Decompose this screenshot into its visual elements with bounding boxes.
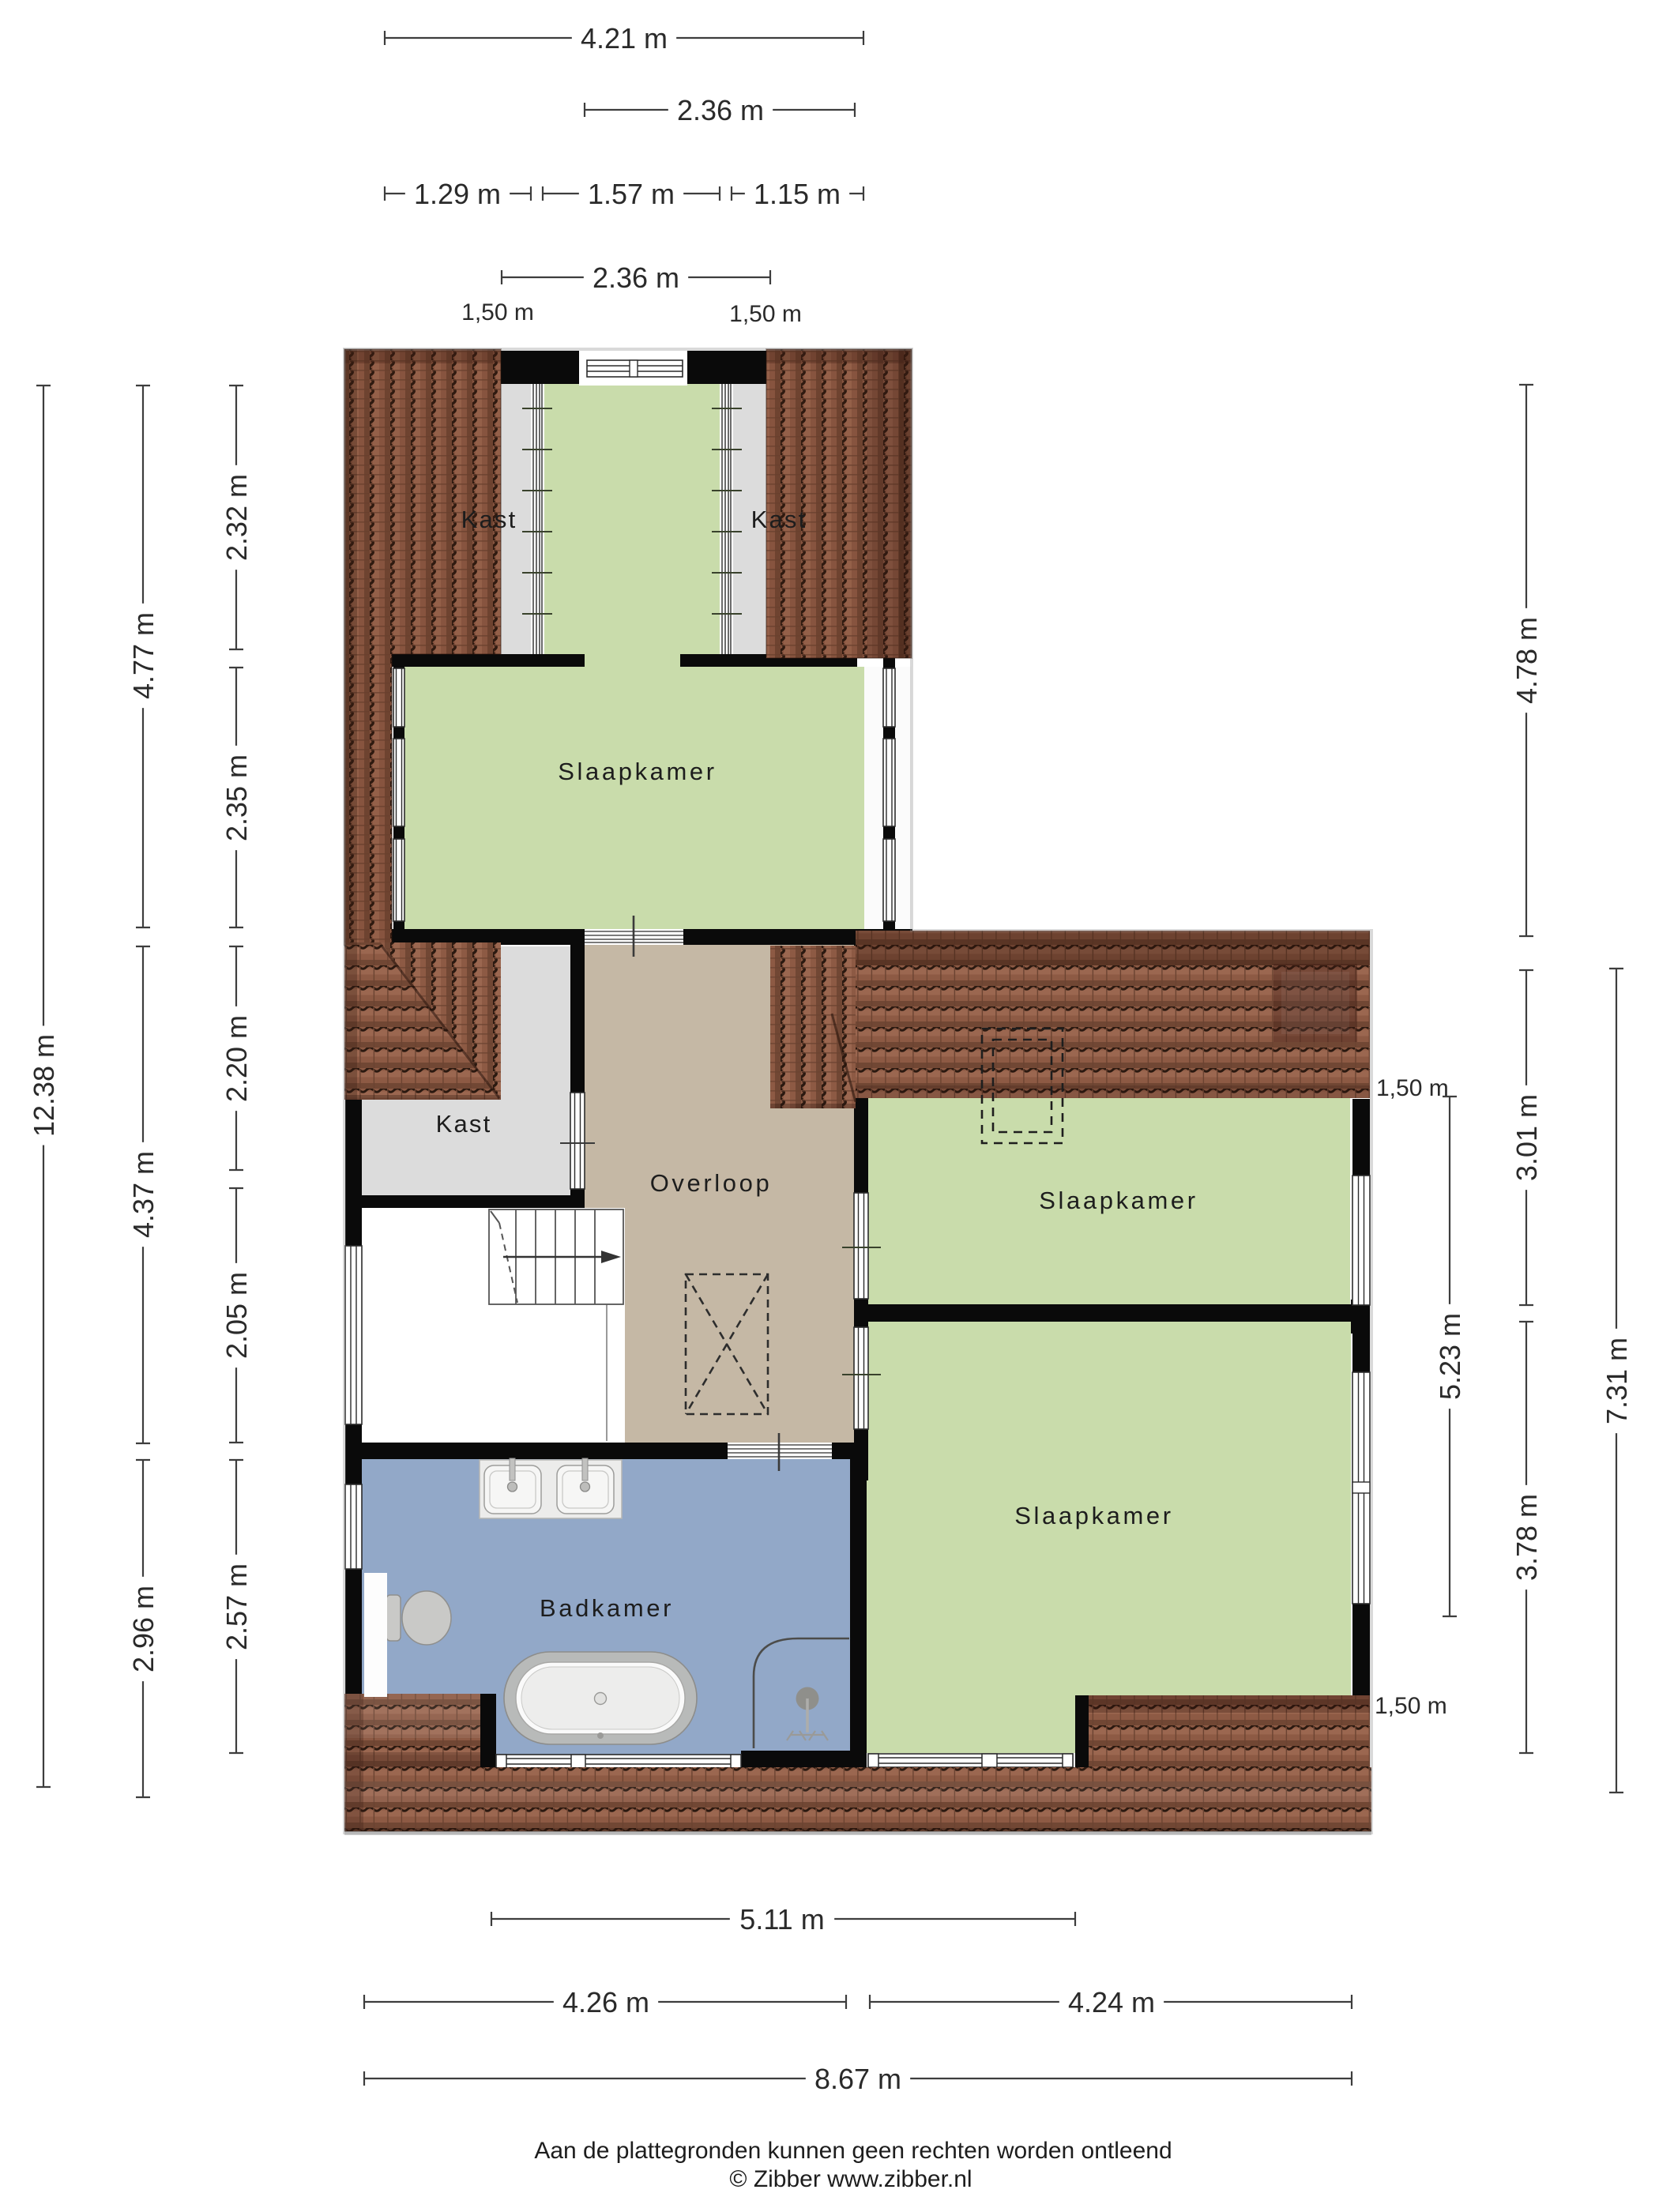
svg-text:5.23 m: 5.23 m — [1434, 1313, 1466, 1400]
svg-text:2.36 m: 2.36 m — [677, 94, 764, 126]
svg-text:2.32 m: 2.32 m — [220, 474, 253, 561]
svg-text:Kast: Kast — [436, 1110, 492, 1138]
svg-text:Aan de plattegronden kunnen ge: Aan de plattegronden kunnen geen rechten… — [534, 2138, 1172, 2164]
svg-text:2.35 m: 2.35 m — [220, 754, 253, 841]
svg-text:4.24 m: 4.24 m — [1068, 1986, 1155, 2018]
svg-text:2.36 m: 2.36 m — [592, 261, 679, 294]
svg-text:4.78 m: 4.78 m — [1510, 617, 1543, 704]
svg-text:2.05 m: 2.05 m — [220, 1272, 253, 1359]
svg-text:1.15 m: 1.15 m — [754, 178, 841, 210]
svg-text:1.29 m: 1.29 m — [414, 178, 501, 210]
svg-text:7.31 m: 7.31 m — [1601, 1337, 1633, 1424]
svg-text:Overloop: Overloop — [650, 1169, 773, 1197]
svg-text:Kast: Kast — [461, 506, 517, 533]
svg-text:5.11 m: 5.11 m — [739, 1903, 824, 1935]
svg-text:4.26 m: 4.26 m — [562, 1986, 649, 2018]
svg-text:© Zibber www.zibber.nl: © Zibber www.zibber.nl — [729, 2166, 972, 2192]
svg-text:8.67 m: 8.67 m — [814, 2063, 901, 2095]
svg-text:2.57 m: 2.57 m — [220, 1563, 253, 1650]
svg-text:Kast: Kast — [751, 506, 807, 533]
svg-text:Slaapkamer: Slaapkamer — [1014, 1502, 1173, 1529]
svg-text:Slaapkamer: Slaapkamer — [1039, 1187, 1198, 1214]
svg-text:4.21 m: 4.21 m — [581, 22, 668, 55]
svg-text:1,50 m: 1,50 m — [461, 299, 534, 325]
svg-text:1,50 m: 1,50 m — [1376, 1075, 1449, 1101]
svg-text:1,50 m: 1,50 m — [1375, 1693, 1447, 1719]
svg-text:2.96 m: 2.96 m — [127, 1586, 160, 1672]
svg-text:1.57 m: 1.57 m — [588, 178, 675, 210]
svg-text:1,50 m: 1,50 m — [729, 301, 802, 327]
svg-text:3.78 m: 3.78 m — [1510, 1494, 1543, 1581]
svg-text:3.01 m: 3.01 m — [1510, 1094, 1543, 1181]
svg-text:Slaapkamer: Slaapkamer — [558, 758, 717, 785]
svg-text:2.20 m: 2.20 m — [220, 1015, 253, 1102]
svg-text:Badkamer: Badkamer — [540, 1594, 674, 1622]
svg-text:4.77 m: 4.77 m — [127, 612, 160, 699]
svg-text:4.37 m: 4.37 m — [127, 1151, 160, 1238]
svg-text:12.38 m: 12.38 m — [28, 1034, 60, 1137]
